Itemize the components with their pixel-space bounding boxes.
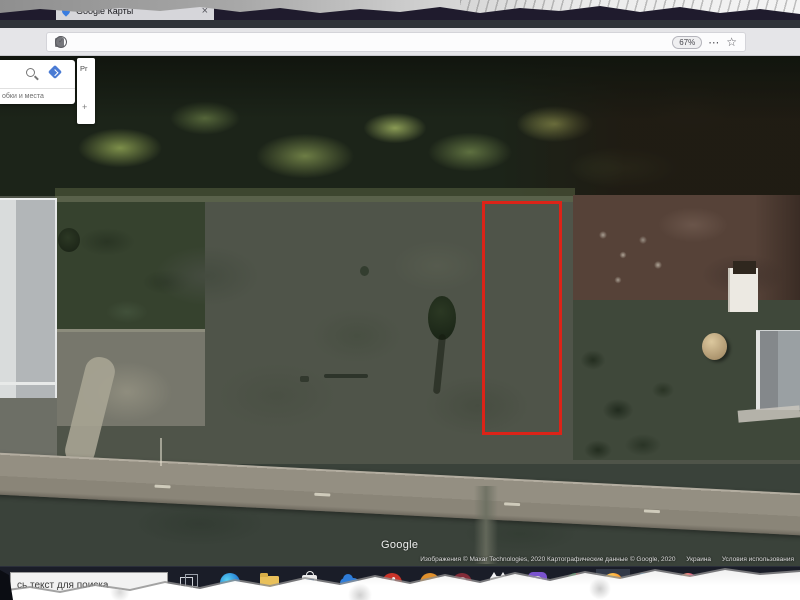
plowed-field — [573, 195, 800, 311]
bush — [58, 228, 80, 252]
roof-ridge-line — [0, 382, 57, 385]
handle-label: Pr — [80, 64, 88, 73]
road-mark — [644, 510, 660, 513]
bookmark-star-icon[interactable]: ☆ — [726, 36, 737, 48]
attribution-imagery: Изображения © Maxar Technologies, 2020 К… — [420, 556, 675, 563]
yard-left — [0, 398, 57, 460]
small-white-building — [728, 268, 758, 312]
zoom-level-badge[interactable]: 67% — [672, 36, 702, 49]
directions-icon[interactable] — [48, 65, 62, 79]
maps-search-panel[interactable]: обки и места — [0, 60, 75, 104]
building-right-roof — [756, 330, 800, 410]
fence-remnant — [324, 374, 368, 378]
map-attribution: Изображения © Maxar Technologies, 2020 К… — [411, 556, 794, 563]
url-bar[interactable]: https://www.google.com.ua/maps/@49.93620… — [46, 32, 746, 52]
badge-icon[interactable]: ✓ — [55, 36, 67, 48]
road-mark — [154, 485, 170, 488]
google-watermark: Google — [381, 539, 418, 551]
haystack — [702, 333, 727, 360]
panel-collapse-handle[interactable]: Pr + — [77, 58, 95, 124]
attribution-region: Украина — [686, 556, 711, 563]
building-left-roof — [0, 198, 57, 398]
search-icon[interactable] — [26, 68, 35, 77]
land-plot-outline — [482, 201, 562, 435]
satellite-map-canvas[interactable]: обки и места Pr + Google Изображения © M… — [0, 56, 800, 566]
screenshot-scrap: Google Карты × https://www.google.com.ua… — [0, 0, 800, 600]
small-building-roof — [733, 261, 756, 274]
attribution-terms-link[interactable]: Условия использования — [722, 556, 794, 563]
road-mark — [314, 493, 330, 496]
fence-remnant-small — [300, 376, 309, 382]
bush-small — [360, 266, 369, 276]
plus-icon[interactable]: + — [82, 102, 87, 112]
panel-hint-text: обки и места — [2, 93, 44, 100]
panel-divider — [0, 88, 75, 89]
page-actions-icon[interactable]: ⋯ — [708, 36, 720, 49]
dirt-track — [474, 486, 498, 564]
browser-navbar: https://www.google.com.ua/maps/@49.93620… — [0, 28, 800, 56]
tree-line — [0, 56, 800, 196]
road-mark — [504, 503, 520, 506]
survey-line — [160, 438, 162, 466]
